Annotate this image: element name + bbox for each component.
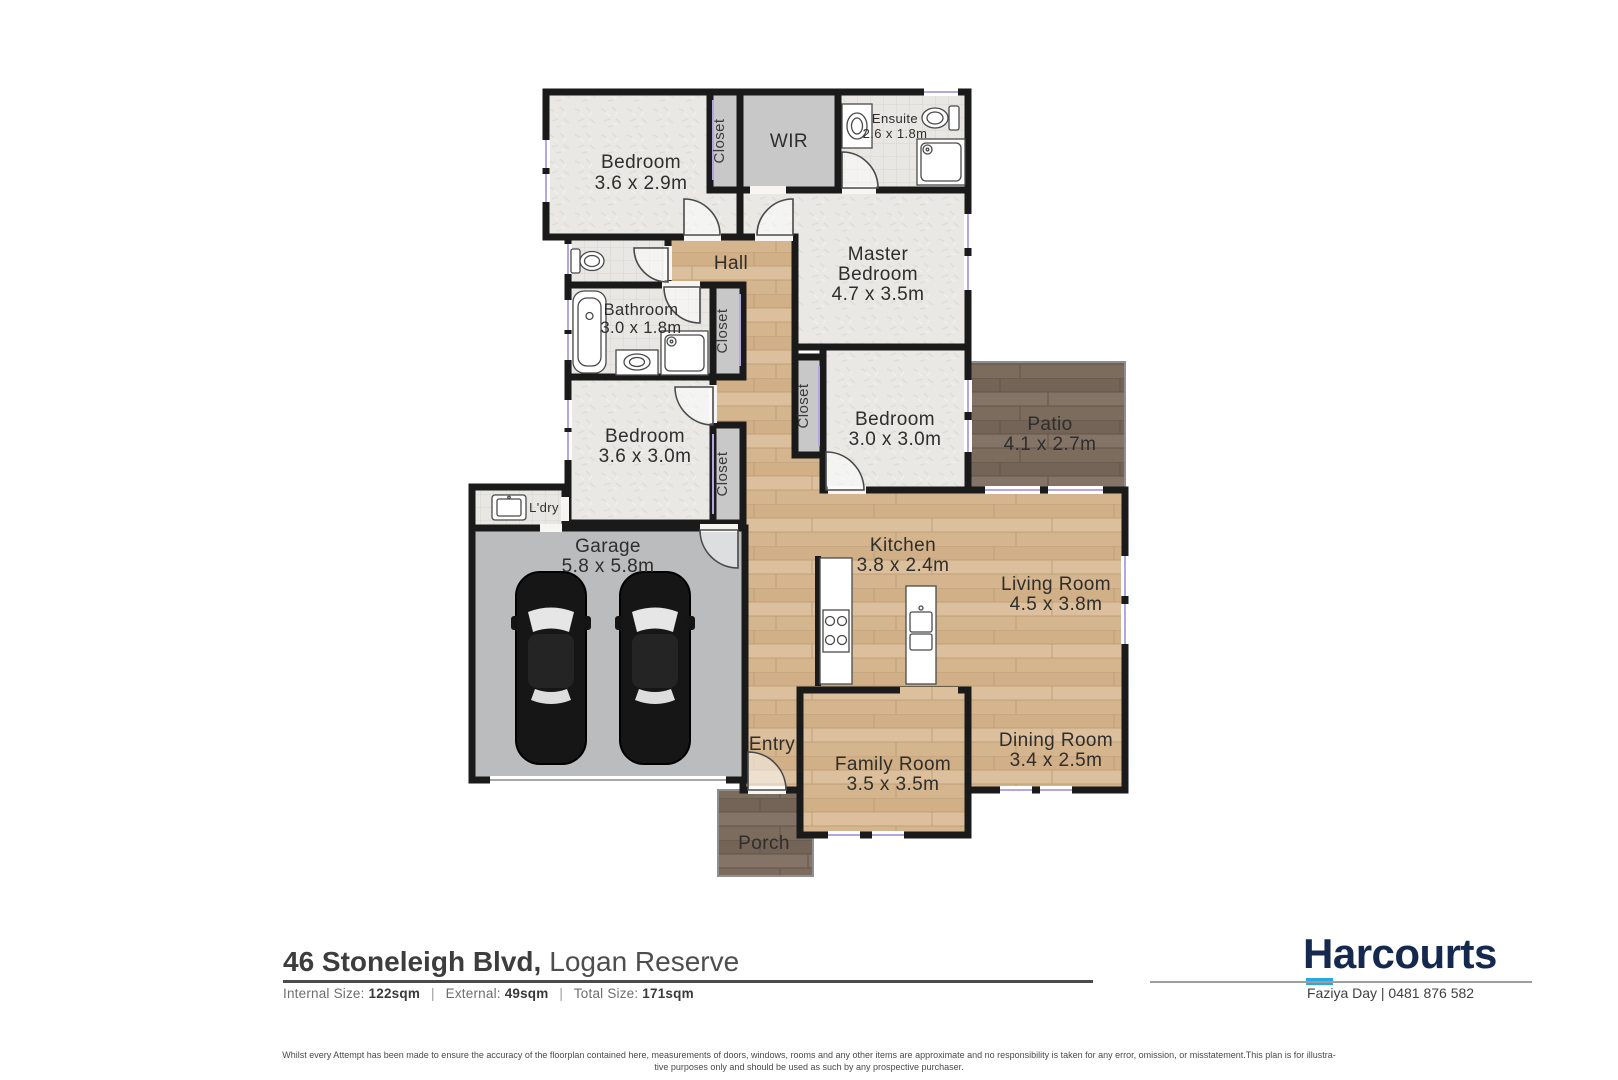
closet-1-label: Closet	[711, 118, 728, 163]
internal-size-value: 122sqm	[369, 986, 420, 1001]
address-divider	[283, 980, 1093, 983]
car-right-icon	[615, 572, 695, 764]
master-label-1: Master	[848, 244, 909, 265]
external-size-label: External:	[446, 986, 501, 1001]
laundry-sink-icon	[492, 495, 526, 520]
closet-3-label: Closet	[714, 451, 731, 496]
master-dims: 4.7 x 3.5m	[832, 284, 925, 305]
family-label: Family Room	[835, 754, 951, 775]
bathroom-label: Bathroom	[604, 301, 679, 319]
bedroom-3-label: Bedroom	[855, 409, 935, 430]
ensuite-shower-icon	[917, 139, 965, 185]
total-size-label: Total Size:	[574, 986, 638, 1001]
total-size-value: 171sqm	[642, 986, 693, 1001]
internal-size-label: Internal Size:	[283, 986, 365, 1001]
kitchen-island	[906, 586, 936, 684]
closet-2-label: Closet	[714, 308, 731, 353]
stove-icon	[823, 610, 849, 652]
garage-label: Garage	[575, 536, 641, 557]
brand-divider	[1150, 981, 1532, 983]
disclaimer: Whilst every Attempt has been made to en…	[0, 1049, 1618, 1073]
master-label-2: Bedroom	[838, 264, 918, 285]
wir-label: WIR	[770, 131, 808, 152]
address-street: 46 Stoneleigh Blvd,	[283, 946, 541, 977]
dining-dims: 3.4 x 2.5m	[1010, 750, 1103, 771]
disclaimer-line-2: tive purposes only and should be used as…	[0, 1061, 1618, 1073]
family-dims: 3.5 x 3.5m	[847, 774, 940, 795]
bathroom-shower-icon	[661, 331, 708, 375]
garage-dims: 5.8 x 5.8m	[562, 556, 655, 577]
hall-label: Hall	[714, 253, 748, 274]
separator: |	[552, 986, 570, 1001]
living-dims: 4.5 x 3.8m	[1010, 594, 1103, 615]
porch-label: Porch	[738, 833, 790, 854]
agent-contact: Faziya Day | 0481 876 582	[1307, 985, 1474, 1001]
laundry-label: L'dry	[529, 500, 559, 515]
patio-label: Patio	[1027, 414, 1072, 435]
property-address: 46 Stoneleigh Blvd,Logan Reserve	[283, 946, 739, 978]
car-left-icon	[511, 572, 591, 764]
bedroom-2-dims: 3.6 x 3.0m	[599, 446, 692, 467]
bathroom-sink-icon	[616, 350, 658, 375]
patio-dims: 4.1 x 2.7m	[1004, 434, 1097, 455]
kitchen-dims: 3.8 x 2.4m	[857, 555, 950, 576]
living-label: Living Room	[1001, 574, 1111, 595]
separator: |	[424, 986, 442, 1001]
address-suburb: Logan Reserve	[549, 946, 739, 977]
harcourts-logo: Harcourts	[1303, 930, 1497, 978]
ensuite-dims: 2.6 x 1.8m	[863, 126, 928, 141]
closet-4-label: Closet	[795, 383, 812, 428]
bedroom-3-dims: 3.0 x 3.0m	[849, 429, 942, 450]
external-size-value: 49sqm	[505, 986, 549, 1001]
disclaimer-line-1: Whilst every Attempt has been made to en…	[0, 1049, 1618, 1061]
dining-label: Dining Room	[999, 730, 1113, 751]
toilet-icon	[571, 249, 604, 273]
bedroom-1-dims: 3.6 x 2.9m	[595, 173, 688, 194]
ensuite-label: Ensuite	[872, 111, 918, 126]
kitchen-label: Kitchen	[870, 535, 936, 556]
bedroom-1-label: Bedroom	[601, 152, 681, 173]
floor-plan: Bedroom 3.6 x 2.9m Closet WIR Ensuite 2.…	[0, 0, 1618, 1080]
ensuite-toilet-icon	[922, 106, 959, 130]
entry-label: Entry	[749, 734, 795, 755]
floorplan-page: Bedroom 3.6 x 2.9m Closet WIR Ensuite 2.…	[0, 0, 1618, 1080]
size-summary: Internal Size: 122sqm | External: 49sqm …	[283, 986, 694, 1001]
bedroom-2-label: Bedroom	[605, 426, 685, 447]
bathroom-dims: 3.0 x 1.8m	[600, 319, 681, 337]
